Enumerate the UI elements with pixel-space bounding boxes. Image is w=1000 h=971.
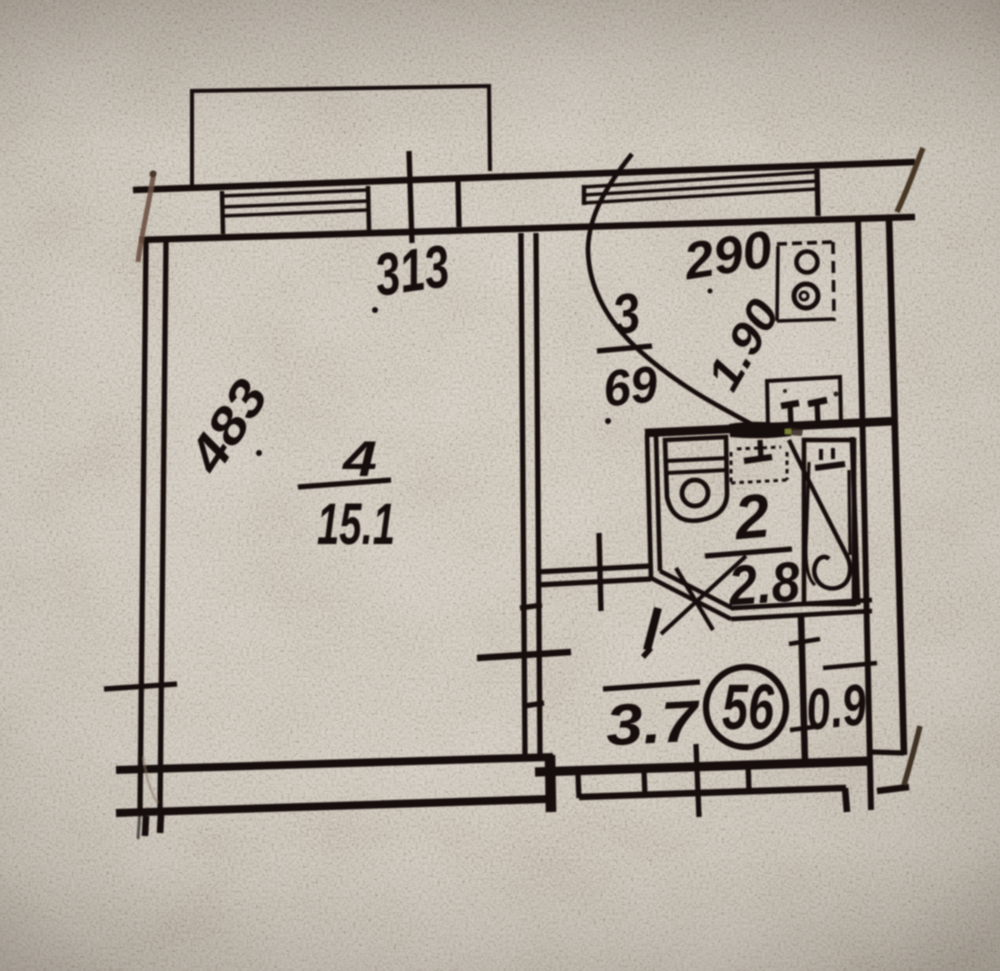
svg-text:3.7: 3.7 <box>604 688 702 758</box>
svg-text:2.8: 2.8 <box>726 549 803 617</box>
svg-text:2: 2 <box>731 481 772 553</box>
svg-text:56: 56 <box>722 671 774 743</box>
svg-text:15.1: 15.1 <box>317 492 395 557</box>
svg-text:0.9: 0.9 <box>803 672 869 743</box>
svg-text:313: 313 <box>371 232 454 309</box>
svg-text:69: 69 <box>600 355 660 417</box>
svg-text:4: 4 <box>342 431 377 487</box>
